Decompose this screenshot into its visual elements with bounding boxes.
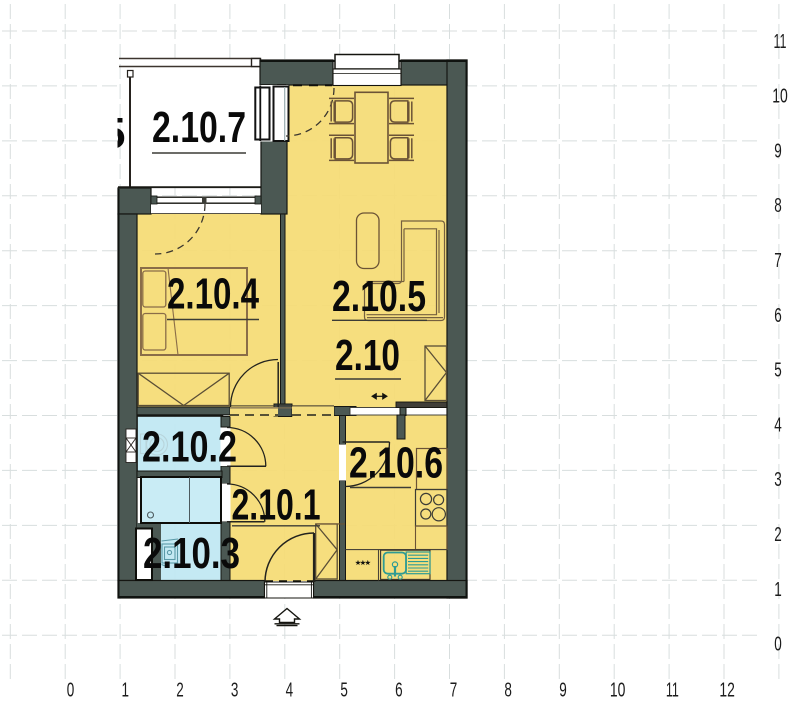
svg-text:2.10.5: 2.10.5 (332, 272, 426, 321)
svg-text:7: 7 (774, 250, 782, 272)
svg-text:0: 0 (774, 634, 782, 656)
svg-text:2.10.3: 2.10.3 (143, 529, 240, 578)
svg-text:2.10: 2.10 (335, 331, 400, 380)
svg-text:4: 4 (774, 414, 782, 436)
svg-text:10: 10 (610, 679, 626, 701)
svg-text:2.10.6: 2.10.6 (349, 439, 443, 488)
svg-text:10: 10 (772, 86, 788, 108)
svg-text:2.10.4: 2.10.4 (167, 270, 259, 319)
svg-text:6: 6 (774, 305, 782, 327)
svg-text:0: 0 (67, 679, 75, 701)
svg-text:2: 2 (176, 679, 184, 701)
svg-text:2.10.1: 2.10.1 (232, 481, 321, 530)
svg-text:8: 8 (504, 679, 512, 701)
svg-text:3: 3 (231, 679, 239, 701)
svg-text:12: 12 (719, 679, 735, 701)
svg-text:2: 2 (774, 524, 782, 546)
svg-text:6: 6 (395, 679, 403, 701)
svg-text:11: 11 (666, 679, 679, 701)
svg-text:1: 1 (122, 679, 130, 701)
svg-text:1: 1 (774, 579, 782, 601)
svg-text:11: 11 (774, 31, 787, 53)
svg-text:5: 5 (774, 360, 782, 382)
svg-text:3: 3 (774, 469, 782, 491)
svg-text:9: 9 (559, 679, 567, 701)
svg-text:8: 8 (774, 195, 782, 217)
svg-text:4: 4 (286, 679, 294, 701)
svg-text:2.10.2: 2.10.2 (142, 423, 237, 472)
svg-text:7: 7 (450, 679, 458, 701)
svg-text:9: 9 (774, 140, 782, 162)
svg-text:5: 5 (340, 679, 348, 701)
svg-text:2.10.7: 2.10.7 (152, 103, 246, 152)
